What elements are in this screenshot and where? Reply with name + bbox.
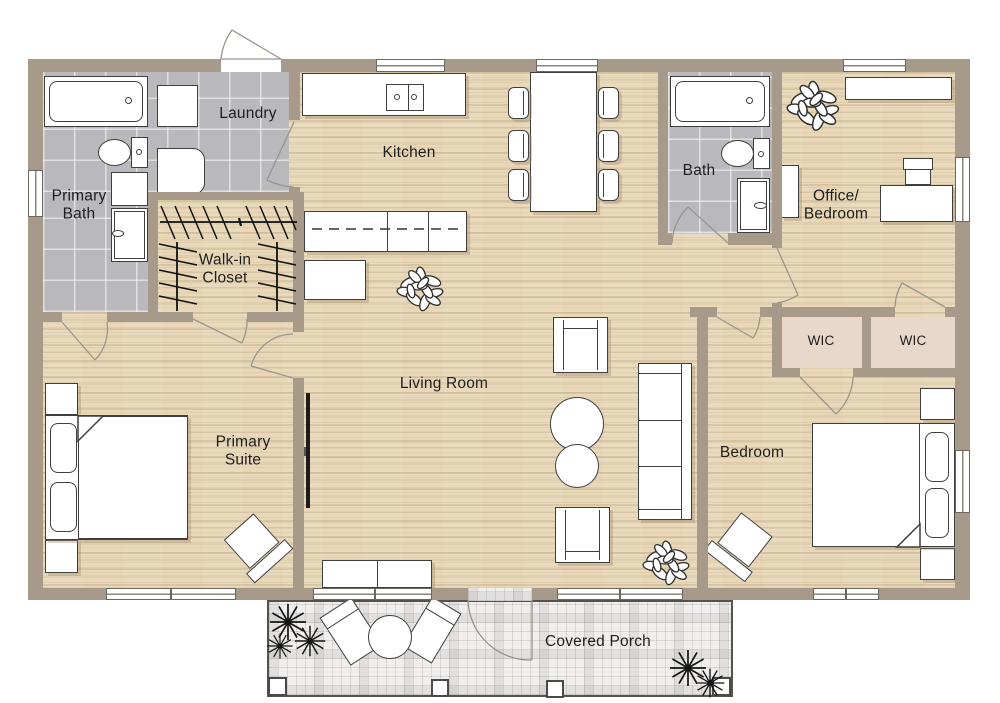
armchair: [555, 507, 610, 563]
window: [843, 59, 906, 72]
wall-segment: [772, 368, 800, 377]
vanity-sink-handle: [754, 202, 767, 209]
wall-segment: [955, 59, 970, 157]
room-label-wic-left: WIC: [808, 333, 835, 349]
round-coffee-table: [550, 397, 604, 451]
wall-segment: [148, 200, 158, 312]
wall-segment: [945, 307, 955, 317]
wall-segment: [658, 233, 672, 245]
label-line: Primary: [52, 188, 107, 206]
toilet-flush-button: [758, 151, 764, 157]
wall-segment: [955, 513, 970, 600]
armchair-arm: [599, 510, 609, 560]
window: [955, 450, 970, 513]
kitchen-counter: [302, 73, 466, 116]
wall-segment: [658, 72, 668, 245]
wall-segment: [955, 222, 970, 450]
desk: [880, 185, 953, 222]
sofa: [638, 363, 692, 520]
wall-segment: [772, 72, 782, 248]
kitchen-sink: [386, 84, 424, 111]
window-mullion: [845, 588, 847, 600]
island-divider: [428, 212, 429, 251]
room-label-covered-porch: Covered Porch: [545, 633, 651, 651]
label-line: Walk-in: [199, 252, 252, 270]
wall-segment: [760, 307, 772, 317]
shower-handle: [112, 230, 124, 237]
room-label-kitchen: Kitchen: [382, 144, 435, 162]
wall-segment: [598, 59, 843, 72]
porch-post: [268, 677, 287, 696]
dining-chair: [598, 169, 619, 201]
wall-segment: [43, 312, 62, 322]
wall-segment: [28, 217, 43, 600]
pillow: [50, 482, 77, 532]
label-line: Office/: [804, 188, 868, 206]
tv: [306, 393, 310, 508]
wall-segment: [432, 588, 468, 600]
label-line: Bedroom: [804, 206, 868, 224]
label-line: Suite: [216, 452, 271, 470]
toilet-flush-button: [136, 149, 142, 155]
dining-chair: [508, 87, 529, 119]
wall-segment: [28, 59, 221, 72]
room-label-walk-in-closet: Walk-in Closet: [199, 252, 252, 289]
window: [376, 59, 445, 72]
sink-faucet: [394, 94, 400, 100]
pillow: [50, 423, 77, 473]
room-label-primary-suite: Primary Suite: [216, 434, 271, 471]
bathtub-drain: [746, 97, 753, 104]
wall-segment: [293, 192, 304, 332]
armchair-arm: [597, 320, 607, 370]
console-divider: [377, 561, 378, 587]
wall-segment: [289, 72, 300, 120]
dining-chair: [508, 130, 529, 162]
wall-segment: [148, 192, 304, 200]
media-console: [322, 560, 432, 588]
wall-segment: [853, 368, 955, 377]
window: [536, 59, 598, 72]
window-mullion: [170, 588, 172, 600]
room-label-laundry: Laundry: [219, 105, 276, 123]
bookcase: [781, 165, 799, 218]
porch-post: [431, 679, 449, 697]
sofa-cushion-divider: [639, 420, 682, 421]
floor-plan: Primary Bath Laundry Kitchen Bath Office…: [0, 0, 1000, 703]
mattress: [78, 416, 188, 539]
sink-faucet: [411, 94, 417, 100]
island-divider: [387, 212, 388, 251]
toilet-bowl: [98, 139, 131, 166]
office-shelf: [845, 77, 952, 100]
nightstand: [45, 383, 78, 415]
window: [28, 170, 43, 217]
sink-divider: [408, 85, 409, 110]
mattress: [812, 423, 920, 547]
wall-segment: [28, 59, 43, 170]
window: [955, 157, 970, 222]
sofa-cushion-divider: [639, 466, 682, 467]
dining-chair: [598, 87, 619, 119]
window-mullion: [619, 588, 621, 600]
porch-door-threshold: [468, 588, 532, 601]
dining-table: [530, 72, 597, 212]
pillow: [925, 488, 949, 538]
patio-table: [368, 615, 412, 659]
wall-segment: [247, 312, 293, 322]
dryer: [157, 148, 205, 195]
nightstand: [45, 540, 78, 573]
kitchen-island: [304, 211, 467, 252]
dining-chair: [598, 130, 619, 162]
kitchen-cabinet: [304, 260, 366, 300]
wall-segment: [697, 307, 708, 588]
porch-post: [546, 680, 564, 698]
entry-door: [221, 30, 281, 59]
wall-segment: [532, 588, 557, 600]
nightstand: [920, 388, 955, 420]
armchair: [553, 317, 608, 373]
sofa-arm: [639, 364, 682, 374]
armchair-back: [565, 551, 600, 552]
window-mullion: [374, 588, 376, 600]
desk-chair-seat: [905, 169, 931, 185]
bathroom-vanity: [111, 172, 148, 206]
pillow: [925, 432, 949, 482]
room-label-bath: Bath: [683, 162, 716, 180]
toilet-bowl: [721, 140, 754, 167]
washer: [157, 85, 198, 127]
room-label-primary-bath: Primary Bath: [52, 188, 107, 225]
porch-post: [712, 677, 731, 696]
wall-segment: [772, 303, 782, 317]
bathtub-drain: [125, 97, 132, 104]
wall-segment: [236, 588, 313, 600]
wall-segment: [782, 307, 895, 317]
sofa-arm: [639, 509, 682, 519]
nightstand: [920, 548, 955, 580]
wall-segment: [107, 312, 193, 322]
room-label-office-bedroom: Office/ Bedroom: [804, 188, 868, 225]
window: [313, 588, 432, 600]
wall-segment: [683, 588, 813, 600]
round-side-table: [555, 444, 599, 488]
wall-segment: [281, 59, 376, 72]
dining-chair: [508, 169, 529, 201]
room-label-bedroom: Bedroom: [720, 444, 784, 462]
label-line: Closet: [199, 270, 252, 288]
armchair-arm: [556, 510, 566, 560]
armchair-back: [563, 328, 598, 329]
wall-segment: [862, 317, 871, 368]
label-line: Bath: [52, 206, 107, 224]
sofa-back: [681, 364, 691, 519]
wall-segment: [445, 59, 536, 72]
wall-segment: [293, 378, 304, 588]
room-label-wic-right: WIC: [900, 333, 927, 349]
room-label-living-room: Living Room: [400, 375, 488, 393]
label-line: Primary: [216, 434, 271, 452]
